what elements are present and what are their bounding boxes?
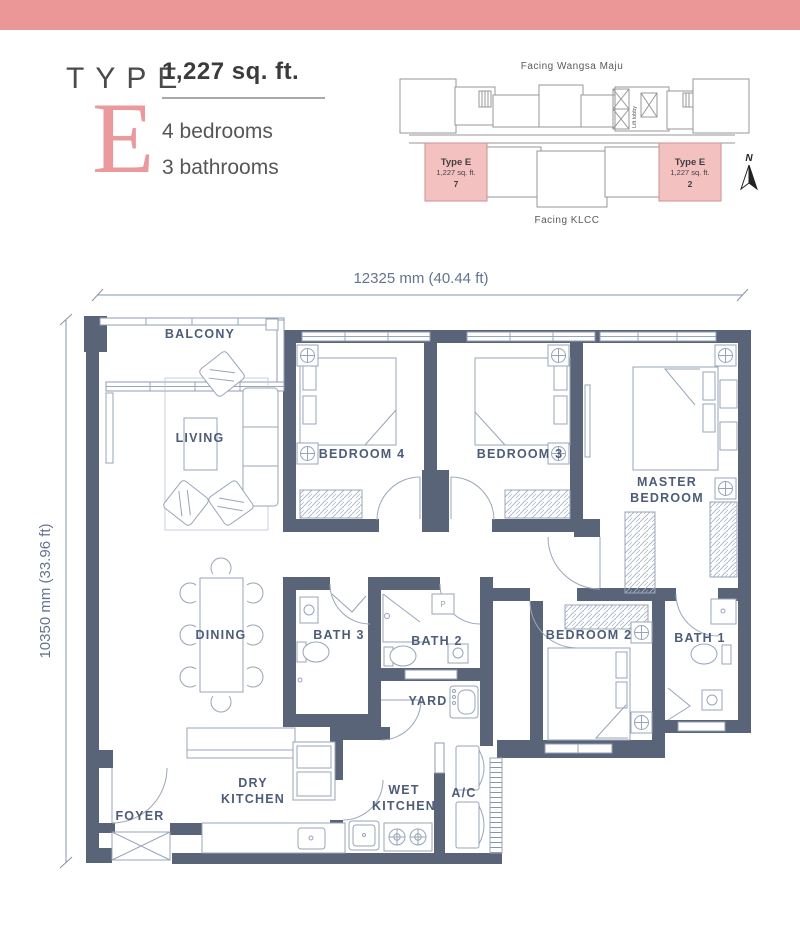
unit-left-number: 7 xyxy=(454,179,459,189)
bedroom-count: 4 bedrooms xyxy=(162,120,325,144)
room-label-wet-1: WET xyxy=(388,783,419,797)
room-label-living: LIVING xyxy=(176,431,225,445)
room-label-balcony: BALCONY xyxy=(165,327,235,341)
facing-top-label: Facing Wangsa Maju xyxy=(521,61,624,72)
room-label-bedroom3: BEDROOM 3 xyxy=(477,447,564,461)
floor-plan: 12325 mm (40.44 ft) 10350 mm (33.96 ft) xyxy=(0,250,800,930)
key-plan-unit-left: Type E 1,227 sq. ft. 7 xyxy=(425,143,487,201)
master-bedroom-furniture xyxy=(585,345,737,593)
divider-rule xyxy=(162,97,325,99)
key-plan-unit-right: Type E 1,227 sq. ft. 2 xyxy=(659,143,721,201)
water-heater-label: P xyxy=(440,600,445,609)
room-label-bedroom4: BEDROOM 4 xyxy=(319,447,406,461)
unit-area: 1,227 sq. ft. xyxy=(162,58,325,86)
unit-left-name: Type E xyxy=(441,157,471,168)
room-label-dining: DINING xyxy=(196,628,247,642)
facing-bottom-label: Facing KLCC xyxy=(535,215,600,226)
width-dimension-label: 12325 mm (40.44 ft) xyxy=(353,270,488,287)
room-label-ac: A/C xyxy=(451,786,476,800)
unit-right-number: 2 xyxy=(688,179,693,189)
lift-lobby-label: Lift lobby xyxy=(632,106,638,128)
svg-text:N: N xyxy=(745,153,753,164)
key-plan: Facing Wangsa Maju Lift lobby xyxy=(385,55,785,235)
floor-plan-page: { "header": { "type_label": "TYPE", "typ… xyxy=(0,0,800,930)
bedroom4-furniture xyxy=(297,345,396,518)
bedroom3-furniture xyxy=(475,345,570,518)
unit-left-area: 1,227 sq. ft. xyxy=(436,168,475,177)
dry-kitchen-fixtures xyxy=(187,728,345,853)
ac-louvre xyxy=(490,758,502,853)
unit-right-name: Type E xyxy=(675,157,705,168)
accent-top-bar xyxy=(0,0,800,30)
bath1-fixtures xyxy=(668,599,736,720)
dimension-height: 10350 mm (33.96 ft) xyxy=(37,314,72,868)
height-dimension-label: 10350 mm (33.96 ft) xyxy=(37,523,54,658)
foyer-fixtures xyxy=(112,832,170,860)
north-arrow-icon: N xyxy=(741,153,757,189)
room-label-yard: YARD xyxy=(408,694,447,708)
room-label-bath3: BATH 3 xyxy=(313,628,364,642)
bath2-fixtures: P xyxy=(383,594,468,666)
bedroom2-furniture xyxy=(548,605,652,740)
yard-fixtures xyxy=(450,686,478,718)
unit-summary: 1,227 sq. ft. 4 bedrooms 3 bathrooms xyxy=(162,58,325,180)
dimension-width: 12325 mm (40.44 ft) xyxy=(92,270,748,301)
room-label-wet-2: KITCHEN xyxy=(372,799,436,813)
unit-right-area: 1,227 sq. ft. xyxy=(670,168,709,177)
room-label-bath1: BATH 1 xyxy=(674,631,725,645)
type-letter: E xyxy=(92,88,154,190)
bathroom-count: 3 bathrooms xyxy=(162,156,325,180)
room-label-master-2: BEDROOM xyxy=(630,491,704,505)
room-label-bedroom2: BEDROOM 2 xyxy=(546,628,633,642)
living-furniture xyxy=(106,319,278,530)
room-label-master-1: MASTER xyxy=(637,475,697,489)
room-label-dry-1: DRY xyxy=(238,776,268,790)
room-label-dry-2: KITCHEN xyxy=(221,792,285,806)
room-label-foyer: FOYER xyxy=(115,809,164,823)
wet-kitchen-fixtures xyxy=(349,821,432,851)
room-label-bath2: BATH 2 xyxy=(411,634,462,648)
